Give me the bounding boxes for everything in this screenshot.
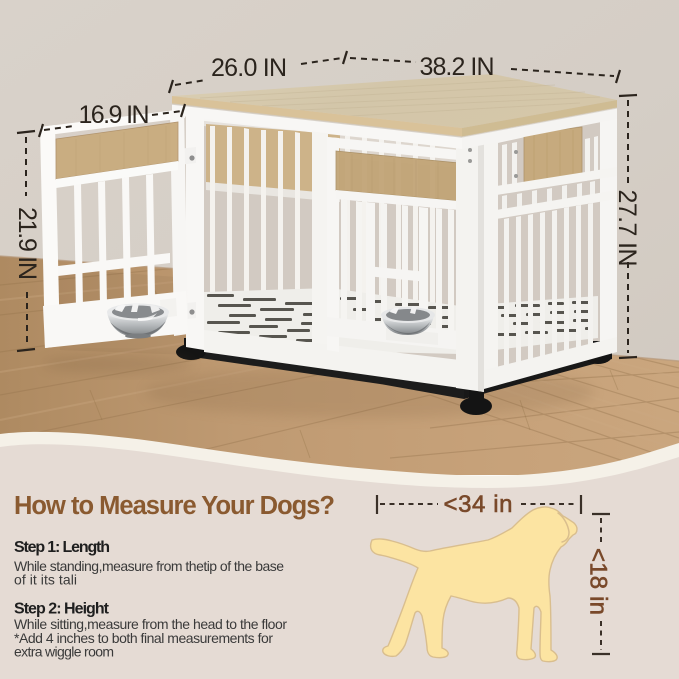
svg-text:<18 in: <18 in [585,548,612,615]
svg-text:27.7 IN: 27.7 IN [613,190,641,267]
svg-text:26.0 IN: 26.0 IN [211,54,287,82]
svg-text:<34 in: <34 in [444,491,513,518]
svg-text:38.2 IN: 38.2 IN [420,53,495,81]
svg-text:of it its tali: of it its tali [14,572,77,588]
svg-text:How to Measure Your Dogs?: How to Measure Your Dogs? [14,492,335,520]
svg-text:Step 1: Length: Step 1: Length [14,539,110,556]
svg-text:21.9 IN: 21.9 IN [13,207,41,280]
svg-text:16.9 IN: 16.9 IN [79,101,150,129]
svg-text:Step 2: Height: Step 2: Height [14,601,110,618]
svg-text:extra wiggle room: extra wiggle room [14,644,114,660]
